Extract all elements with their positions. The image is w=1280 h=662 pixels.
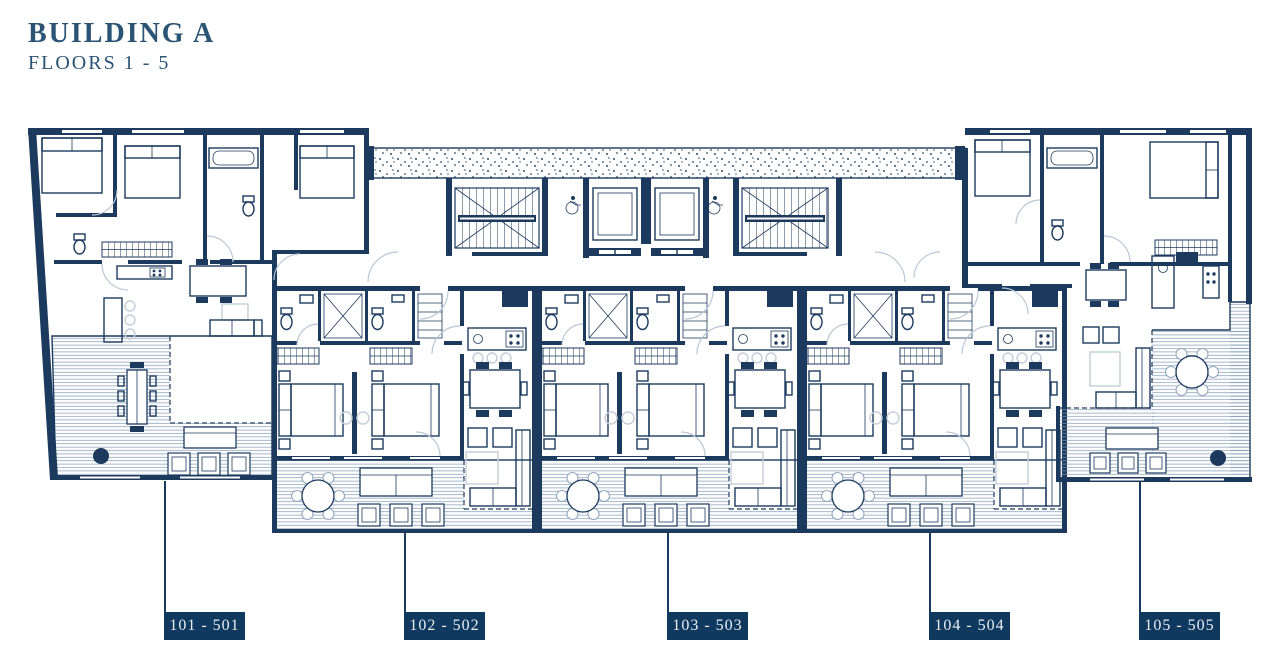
unit-label-101-501[interactable]: 101 - 501: [164, 612, 245, 640]
unit-label-104-504[interactable]: 104 - 504: [929, 612, 1010, 640]
wardrobe-icon: [102, 242, 172, 257]
bathtub-icon: [1047, 148, 1097, 168]
planter-dot-icon: [93, 448, 109, 464]
side-table-icon: [168, 453, 250, 475]
outdoor-sofa-icon: [184, 427, 236, 448]
plan-header: BUILDING A FLOORS 1 - 5: [28, 18, 215, 75]
elevator-icon: [583, 178, 709, 258]
unit-104: [802, 286, 1067, 533]
bed-icon: [125, 146, 180, 198]
side-table-icon: [1090, 453, 1166, 473]
outdoor-sofa-icon: [1106, 428, 1158, 449]
sofa-icon: [1096, 348, 1150, 408]
stairs-icon: [446, 178, 548, 256]
planter-dot-icon: [1210, 450, 1226, 466]
bed-icon: [975, 140, 1030, 196]
bathtub-icon: [209, 148, 258, 168]
toilet-icon: [243, 196, 254, 216]
kitchen-island-icon: [104, 266, 172, 342]
unit-label-102-502[interactable]: 102 - 502: [404, 612, 485, 640]
floorplan-page: BUILDING A FLOORS 1 - 5 101 - 501 102 - …: [0, 0, 1280, 662]
toilet-icon: [1052, 220, 1063, 240]
unit-103: [537, 286, 802, 533]
wheelchair-icon: [566, 196, 581, 214]
bed-icon: [42, 138, 102, 193]
unit-label-105-505[interactable]: 105 - 505: [1139, 612, 1220, 640]
unit-label-103-503[interactable]: 103 - 503: [667, 612, 748, 640]
bed-icon: [1150, 142, 1218, 198]
sofa-icon: [210, 320, 262, 336]
unit-101: [28, 128, 369, 480]
dining-table-icon: [1086, 263, 1126, 307]
building-core: [368, 178, 940, 282]
dining-table-icon: [190, 259, 246, 303]
wheelchair-icon: [708, 196, 723, 214]
unit-105: [962, 128, 1252, 482]
page-subtitle: FLOORS 1 - 5: [28, 52, 215, 75]
unit-102: [272, 286, 537, 533]
floorplan-drawing: [0, 0, 1280, 662]
stairs-icon: [733, 178, 842, 256]
page-title: BUILDING A: [28, 18, 215, 50]
toilet-icon: [74, 234, 85, 254]
bed-icon: [300, 146, 354, 198]
kitchen-island-icon: [1152, 252, 1219, 308]
core-band: [364, 146, 965, 180]
